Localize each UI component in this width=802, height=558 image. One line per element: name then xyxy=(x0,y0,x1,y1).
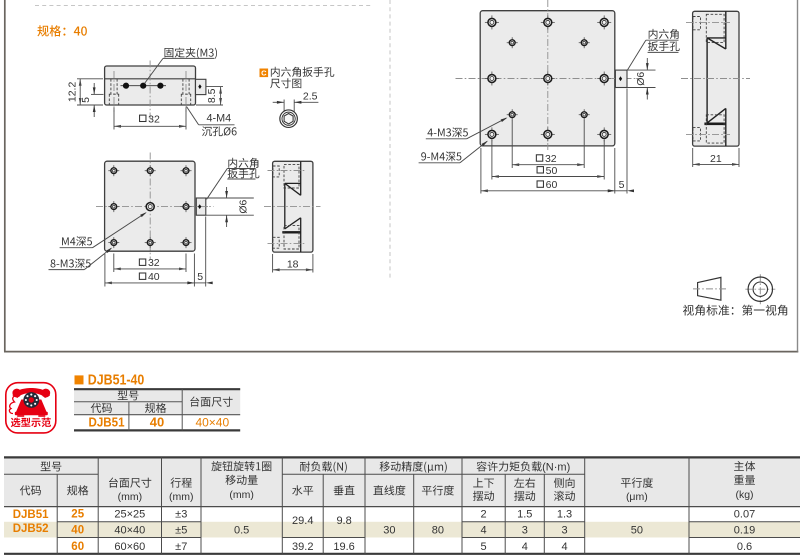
svg-text:DJB52: DJB52 xyxy=(13,523,49,535)
svg-text:DJB51: DJB51 xyxy=(89,415,125,430)
svg-text:(N·m): (N·m) xyxy=(542,462,570,474)
svg-text:0.5: 0.5 xyxy=(234,524,249,536)
svg-text:19.6: 19.6 xyxy=(333,541,354,553)
svg-text:4: 4 xyxy=(561,541,567,553)
svg-text:40: 40 xyxy=(71,524,84,536)
svg-text:5: 5 xyxy=(481,541,487,553)
svg-text:±5: ±5 xyxy=(175,524,187,536)
svg-text:(mm): (mm) xyxy=(229,489,254,501)
svg-text:40: 40 xyxy=(150,415,164,430)
svg-text:4-M4: 4-M4 xyxy=(207,113,232,125)
svg-text:29.4: 29.4 xyxy=(292,515,313,527)
svg-text:(mm): (mm) xyxy=(118,491,143,503)
svg-text:32: 32 xyxy=(148,113,160,125)
svg-text:32: 32 xyxy=(148,257,160,269)
svg-text:3: 3 xyxy=(561,524,567,536)
svg-text:1.5: 1.5 xyxy=(517,508,532,520)
svg-text:±7: ±7 xyxy=(175,541,187,553)
svg-text:DJB51: DJB51 xyxy=(13,509,49,521)
svg-text:30: 30 xyxy=(383,524,395,536)
svg-text:5: 5 xyxy=(80,97,92,103)
svg-text:12.2: 12.2 xyxy=(66,82,78,103)
svg-text:32: 32 xyxy=(545,153,557,165)
svg-text:2.5: 2.5 xyxy=(303,91,318,103)
svg-text:(kg): (kg) xyxy=(735,489,753,501)
svg-text:Ø6: Ø6 xyxy=(238,199,250,213)
svg-text:2: 2 xyxy=(481,508,487,520)
svg-text:C: C xyxy=(261,69,267,78)
svg-text:18: 18 xyxy=(287,258,299,270)
svg-text:(μm): (μm) xyxy=(626,491,648,503)
svg-text:60×60: 60×60 xyxy=(114,541,145,553)
svg-text:±3: ±3 xyxy=(175,508,187,520)
svg-text:4: 4 xyxy=(522,541,528,553)
svg-text:1.3: 1.3 xyxy=(557,508,572,520)
svg-text:40×40: 40×40 xyxy=(114,524,145,536)
svg-text:9.8: 9.8 xyxy=(336,515,351,527)
svg-text:50: 50 xyxy=(546,165,558,177)
svg-text:60: 60 xyxy=(71,541,84,553)
svg-text:0.19: 0.19 xyxy=(734,524,755,536)
svg-text:0.6: 0.6 xyxy=(737,541,752,553)
svg-text:21: 21 xyxy=(710,153,722,165)
svg-text:(mm): (mm) xyxy=(169,491,194,503)
svg-text:25: 25 xyxy=(71,508,84,520)
svg-text:Ø6: Ø6 xyxy=(635,72,647,86)
svg-text:8.5: 8.5 xyxy=(206,88,218,103)
svg-text:80: 80 xyxy=(432,524,444,536)
svg-text:50: 50 xyxy=(631,524,643,536)
svg-text:39.2: 39.2 xyxy=(292,541,313,553)
svg-text:40×40: 40×40 xyxy=(195,415,229,429)
svg-text:5: 5 xyxy=(619,179,625,191)
svg-text:60: 60 xyxy=(546,179,558,191)
svg-text:40: 40 xyxy=(148,271,160,283)
svg-text:5: 5 xyxy=(197,271,203,283)
svg-text:0.07: 0.07 xyxy=(734,508,755,520)
svg-text:4: 4 xyxy=(481,524,487,536)
svg-text:25×25: 25×25 xyxy=(114,508,145,520)
svg-text:DJB51-40: DJB51-40 xyxy=(88,372,145,389)
svg-text:3: 3 xyxy=(522,524,528,536)
